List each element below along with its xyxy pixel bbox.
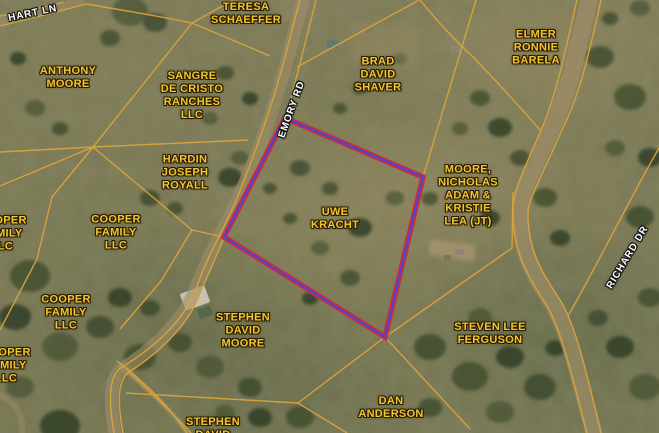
parcel-boundary-line — [86, 4, 192, 23]
parcel-boundary-line — [298, 403, 347, 433]
parcel-label-dan-anderson: DAN ANDERSON — [358, 395, 423, 421]
parcel-label-cooper-family-1: COOPER FAMILY LLC — [0, 215, 27, 254]
parcel-boundary-line — [298, 337, 385, 403]
parcel-boundary-line — [423, 0, 476, 177]
driveway-roadbed — [120, 366, 188, 433]
parcel-boundary-line — [93, 140, 248, 147]
parcel-label-stephen-david-2: STEPHEN DAVID — [186, 416, 240, 433]
parcel-boundary-line — [126, 393, 298, 403]
parcel-boundary-line — [0, 147, 93, 186]
parcel-label-cooper-family-2: COOPER FAMILY LLC — [91, 214, 140, 253]
parcel-label-hardin-joseph-royall: HARDIN JOSEPH ROYALL — [162, 154, 208, 193]
parcel-label-elmer-ronnie-barela: ELMER RONNIE BARELA — [512, 29, 560, 68]
parcel-label-uwe-kracht: UWE KRACHT — [311, 206, 359, 232]
parcel-label-stephen-david-moore: STEPHEN DAVID MOORE — [216, 312, 270, 351]
parcel-boundary-line — [0, 147, 93, 152]
parcel-label-cooper-family-4: COOPER FAMILY LLC — [0, 347, 31, 386]
parcel-label-teresa-schaeffer: TERESA SCHAEFFER — [211, 1, 281, 27]
parcel-label-anthony-moore: ANTHONY MOORE — [40, 65, 97, 91]
parcel-label-steven-lee-ferguson: STEVEN LEE FERGUSON — [454, 321, 525, 347]
parcel-label-sangre-de-cristo: SANGRE DE CRISTO RANCHES LLC — [161, 70, 223, 122]
parcel-label-cooper-family-3: COOPER FAMILY LLC — [41, 294, 90, 333]
map-canvas[interactable]: TERESA SCHAEFFER ANTHONY MOORE SANGRE DE… — [0, 0, 659, 433]
parcel-label-brad-david-shaver: BRAD DAVID SHAVER — [355, 56, 402, 95]
parcel-boundary-line — [192, 23, 270, 56]
parcel-label-moore-nicholas: MOORE, NICHOLAS ADAM & KRISTIE LEA (JT) — [438, 164, 498, 229]
corner-road-roadbed — [0, 395, 22, 433]
